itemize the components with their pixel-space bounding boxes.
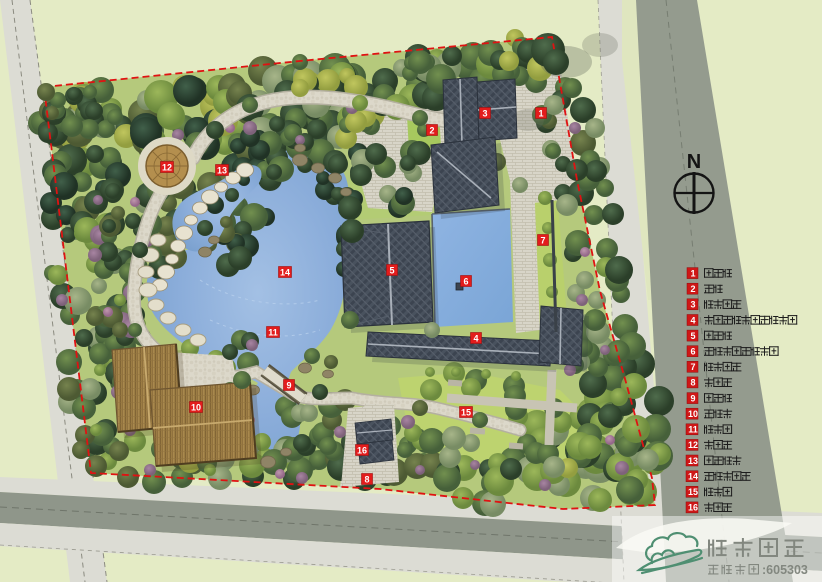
- svg-text:13: 13: [217, 165, 227, 175]
- svg-text:2: 2: [429, 125, 434, 135]
- svg-text:8: 8: [364, 474, 369, 484]
- svg-text:3: 3: [482, 108, 487, 118]
- svg-text:2: 2: [690, 284, 695, 294]
- svg-text:4: 4: [690, 315, 695, 325]
- svg-text:9: 9: [690, 393, 695, 403]
- svg-text:7: 7: [690, 362, 695, 372]
- svg-text:16: 16: [357, 445, 367, 455]
- svg-text:12: 12: [688, 440, 698, 450]
- svg-text:6: 6: [690, 347, 695, 357]
- svg-text:10: 10: [688, 409, 698, 419]
- svg-text::605303: :605303: [762, 563, 808, 577]
- svg-text:1: 1: [690, 268, 695, 278]
- svg-text:6: 6: [463, 276, 468, 286]
- svg-text:13: 13: [688, 456, 698, 466]
- svg-text:1: 1: [538, 108, 543, 118]
- svg-text:10: 10: [191, 402, 201, 412]
- svg-text:16: 16: [688, 503, 698, 513]
- svg-text:11: 11: [268, 327, 278, 337]
- svg-text:11: 11: [688, 425, 698, 435]
- svg-text:14: 14: [688, 472, 698, 482]
- svg-text:15: 15: [461, 407, 471, 417]
- svg-text:5: 5: [690, 331, 695, 341]
- svg-text:5: 5: [389, 265, 394, 275]
- svg-text:8: 8: [690, 378, 695, 388]
- svg-text:7: 7: [540, 235, 545, 245]
- svg-text:3: 3: [690, 300, 695, 310]
- svg-text:14: 14: [280, 267, 290, 277]
- svg-text:N: N: [687, 151, 701, 173]
- svg-text:12: 12: [162, 162, 172, 172]
- svg-text:4: 4: [473, 333, 478, 343]
- svg-text:9: 9: [286, 380, 291, 390]
- svg-text:15: 15: [688, 487, 698, 497]
